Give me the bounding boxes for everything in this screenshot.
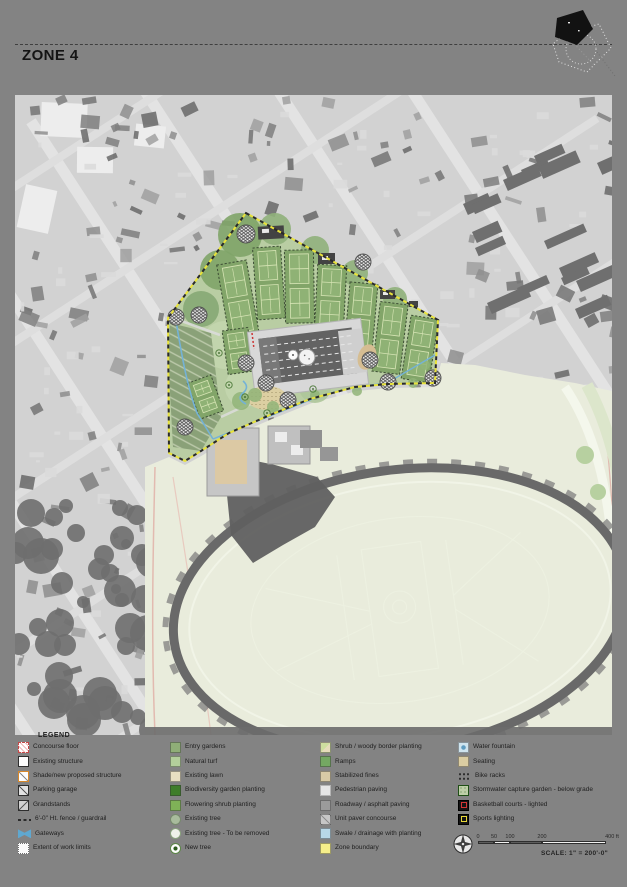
natural-turf-swatch [170,756,181,767]
legend-item: Shrub / woody border planting [320,742,456,753]
scale-tick-label: 400 ft [605,834,619,840]
legend-item-label: Extent of work limits [33,845,91,852]
legend-item-label: Existing lawn [185,773,223,780]
legend-item: Seating [458,756,614,767]
legend-column-structures: Concourse floorExisting structureShade/n… [18,742,168,854]
legend-item-label: Sports lighting [473,816,514,823]
legend-column-planting: Entry gardensNatural turfExisting lawnBi… [170,742,318,854]
legend-item: Existing tree - To be removed [170,828,318,839]
flowering-shrub-swatch [170,800,181,811]
shrub-border-swatch [320,742,331,753]
legend-item-label: Unit paver concourse [335,816,396,823]
asphalt-paving-swatch [320,800,331,811]
legend-item-label: Pedestrian paving [335,787,387,794]
legend-item: Water fountain [458,742,614,753]
legend-item-label: 6'-0" Ht. fence / guardrail [35,816,106,823]
legend-title: LEGEND [38,732,70,739]
legend-item: Existing tree [170,814,318,825]
legend-item: Swale / drainage with planting [320,828,456,839]
existing-structure-swatch [18,756,29,767]
legend-item-label: Water fountain [473,744,515,751]
legend-item-label: Roadway / asphalt paving [335,802,409,809]
legend-item-label: Parking garage [33,787,77,794]
legend-item-label: Swale / drainage with planting [335,831,421,838]
legend-item-label: New tree [185,845,211,852]
legend-item: Existing lawn [170,771,318,782]
proposed-structure-swatch [18,771,29,782]
legend-item: Stabilized fines [320,771,456,782]
legend-item-label: Entry gardens [185,744,225,751]
legend-item-label: Bike racks [475,773,505,780]
existing-lawn-swatch [170,771,181,782]
header-divider [15,44,612,45]
biodiversity-planting-swatch [170,785,181,796]
scale-tick-label: 100 [505,834,514,840]
legend-item-label: Existing structure [33,759,83,766]
legend-item: Grandstands [18,800,168,811]
legend-item-label: Natural turf [185,759,217,766]
legend-item-label: Shade/new proposed structure [33,773,122,780]
legend-item: Shade/new proposed structure [18,771,168,782]
legend-item-label: Stabilized fines [335,773,379,780]
legend-column-amenities: Water fountainSeatingBike racksStormwate… [458,742,614,825]
court-red-swatch [458,800,469,811]
legend-item: Zone boundary [320,843,456,854]
legend-item: Biodiversity garden planting [170,785,318,796]
scale-segment [542,841,606,844]
legend-item-label: Grandstands [33,802,70,809]
legend-item: Basketball courts - lighted [458,800,614,811]
legend-item: Flowering shrub planting [170,800,318,811]
legend-column-surfaces: Shrub / woody border plantingRampsStabil… [320,742,456,854]
scale-tick-label: 200 [537,834,546,840]
page-title: ZONE 4 [22,47,79,64]
site-plan-map [15,95,612,735]
legend-item: Natural turf [170,756,318,767]
legend-item-label: Shrub / woody border planting [335,744,422,751]
ramps-swatch [320,756,331,767]
stormwater-garden-swatch [458,785,469,796]
water-fountain-swatch [458,742,469,753]
legend-item-label: Flowering shrub planting [185,802,256,809]
legend-item-label: Gateways [35,831,64,838]
parking-garage-swatch [18,785,29,796]
fence-line-swatch [18,819,31,822]
legend-item: Sports lighting [458,814,614,825]
new-tree-swatch [170,843,181,854]
sports-lighting-swatch [458,814,469,825]
gateway-swatch [18,829,31,838]
scale-segment [478,841,494,844]
north-arrow-icon [452,833,474,855]
scale-caption: SCALE: 1" = 200'-0" [478,850,608,857]
zone-locator-icon [535,4,617,80]
seating-swatch [458,756,469,767]
legend-item-label: Stormwater capture garden - below grade [473,787,593,794]
entry-gardens-swatch [170,742,181,753]
legend-item-label: Seating [473,759,495,766]
legend-item-label: Zone boundary [335,845,379,852]
legend-item: Parking garage [18,785,168,796]
scale-segment [494,841,510,844]
legend-item-label: Existing tree - To be removed [185,831,269,838]
legend-item-label: Ramps [335,759,356,766]
scale-tick-label: 0 [476,834,479,840]
legend-item: Roadway / asphalt paving [320,800,456,811]
legend-item: Entry gardens [170,742,318,753]
legend-item: 6'-0" Ht. fence / guardrail [18,814,168,825]
legend-item-label: Existing tree [185,816,221,823]
legend-item: Existing structure [18,756,168,767]
legend-item: Stormwater capture garden - below grade [458,785,614,796]
scale-bar [478,841,606,846]
scale-segment [510,841,542,844]
stabilized-fines-swatch [320,771,331,782]
legend-item: New tree [170,843,318,854]
bike-racks-swatch [458,772,471,781]
tree-removed-swatch [170,828,181,839]
concourse-floor-swatch [18,742,29,753]
legend-item: Pedestrian paving [320,785,456,796]
legend-item-label: Basketball courts - lighted [473,802,547,809]
existing-tree-swatch [170,814,181,825]
legend-item: Unit paver concourse [320,814,456,825]
legend-item: Concourse floor [18,742,168,753]
work-limits-swatch [18,843,29,854]
grandstands-swatch [18,800,29,811]
legend-item-label: Concourse floor [33,744,79,751]
legend-item: Gateways [18,828,168,839]
scale-tick-label: 50 [491,834,497,840]
swale-planting-swatch [320,828,331,839]
legend-item-label: Biodiversity garden planting [185,787,265,794]
pedestrian-paving-swatch [320,785,331,796]
legend-item: Extent of work limits [18,843,168,854]
legend-item: Ramps [320,756,456,767]
legend-item: Bike racks [458,771,614,782]
unit-paver-swatch [320,814,331,825]
zone-boundary-swatch [320,843,331,854]
plan-sheet: ZONE 4 LEGEND Concourse floorExisting st… [0,0,627,887]
